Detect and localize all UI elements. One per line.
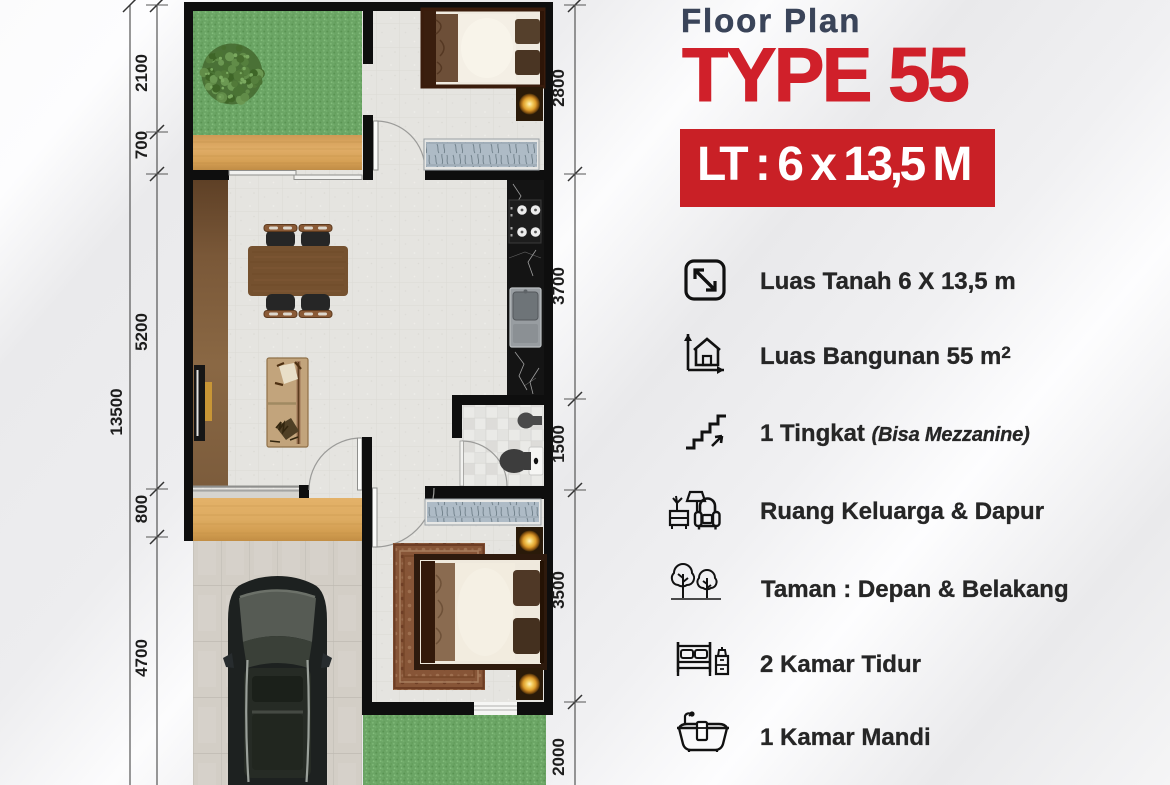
svg-text:3700: 3700 [549, 267, 568, 305]
svg-text:13500: 13500 [107, 388, 126, 435]
svg-text:3500: 3500 [549, 571, 568, 609]
svg-text:1500: 1500 [549, 425, 568, 463]
svg-text:4700: 4700 [132, 639, 151, 677]
svg-text:700: 700 [132, 131, 151, 159]
svg-text:800: 800 [132, 495, 151, 523]
svg-text:2800: 2800 [549, 69, 568, 107]
svg-text:2000: 2000 [549, 738, 568, 776]
svg-text:2100: 2100 [132, 54, 151, 92]
svg-text:5200: 5200 [132, 313, 151, 351]
